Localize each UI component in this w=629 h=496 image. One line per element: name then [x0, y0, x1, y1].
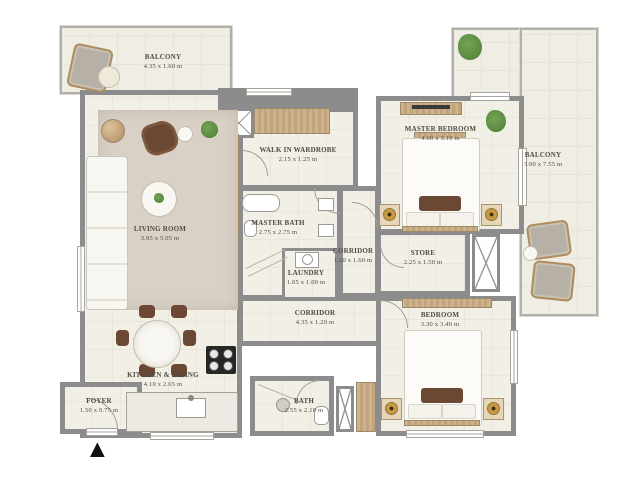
room-dims: 3.95 x 5.05 m [115, 234, 205, 243]
burner-icon [223, 349, 233, 359]
balcony-right-label: BALCONY 3.00 x 7.55 m [507, 150, 579, 170]
pillow [408, 404, 442, 419]
bed-throw-second [421, 388, 463, 403]
bedroom-wardrobe [402, 298, 492, 308]
bathtub [242, 194, 280, 212]
kitchen-sink [176, 398, 206, 418]
room-name: LIVING ROOM [115, 224, 205, 234]
pillow [440, 212, 474, 227]
master-bath-label: MASTER BATH 2.75 x 2.75 m [234, 218, 322, 238]
plant-balcony-icon [458, 34, 482, 60]
room-dims: 2.15 x 1.25 m [243, 155, 353, 164]
room-name: MASTER BEDROOM [388, 124, 493, 134]
room-name: BEDROOM [394, 310, 486, 320]
dining-table [133, 320, 181, 368]
bedroom-label: BEDROOM 3.30 x 3.40 m [394, 310, 486, 330]
sink-master-1 [318, 198, 334, 211]
side-table-wood [101, 119, 125, 143]
room-dims: 1.05 x 1.00 m [272, 278, 340, 287]
burner-icon [209, 349, 219, 359]
pillow [442, 404, 476, 419]
living-room-label: LIVING ROOM 3.95 x 5.05 m [115, 224, 205, 244]
room-dims: 4.35 x 1.20 m [268, 318, 362, 327]
room-dims: 2.55 x 2.10 m [264, 406, 344, 415]
wardrobe-cabinet-top [254, 108, 330, 134]
dining-chair [116, 330, 129, 346]
pillow [406, 212, 440, 227]
store-label: STORE 2.25 x 1.50 m [380, 248, 466, 268]
shaft-right-icon [472, 234, 500, 292]
room-name: BALCONY [507, 150, 579, 160]
room-dims: 4.35 x 1.60 m [118, 62, 208, 71]
balcony-side-table [523, 246, 538, 261]
kitchen-label: KITCHEN & DINING 4.10 x 2.65 m [112, 370, 214, 390]
balcony-top-label: BALCONY 4.35 x 1.60 m [118, 52, 208, 72]
room-name: MASTER BATH [234, 218, 322, 228]
balcony-armchair [530, 260, 576, 302]
lamp-icon [385, 402, 398, 415]
faucet-icon [188, 395, 194, 401]
room-name: LAUNDRY [272, 268, 340, 278]
lamp-icon [487, 402, 500, 415]
burner-icon [223, 361, 233, 371]
room-name: BATH [264, 396, 344, 406]
master-tv [412, 105, 450, 109]
corridor-lower-label: CORRIDOR 4.35 x 1.20 m [268, 308, 362, 328]
master-bedroom-label: MASTER BEDROOM 4.60 x 3.10 m [388, 124, 493, 144]
wardrobe-label: WALK IN WARDROBE 2.15 x 1.25 m [243, 145, 353, 165]
washer-door-icon [302, 254, 313, 265]
laundry-label: LAUNDRY 1.05 x 1.00 m [272, 268, 340, 288]
dining-chair [139, 305, 155, 318]
headboard-second [404, 420, 480, 426]
headboard-master [402, 226, 478, 232]
room-dims: 4.60 x 3.10 m [388, 134, 493, 143]
room-dims: 2.25 x 1.50 m [380, 258, 466, 267]
room-dims: 3.30 x 3.40 m [394, 320, 486, 329]
coffee-table-plant-icon [154, 193, 164, 203]
north-arrow-icon: ▲ [85, 437, 110, 462]
window-bedroom-bottom [406, 430, 484, 438]
bath-side-panel [356, 382, 376, 432]
bed-throw-master [419, 196, 461, 211]
room-dims: 3.00 x 7.55 m [507, 160, 579, 169]
window-living-left [77, 246, 85, 312]
room-name: FOYER [64, 396, 134, 406]
floor-plan: BALCONY 4.35 x 1.60 m LIVING ROOM 3.95 x… [0, 0, 629, 496]
room-name: BALCONY [118, 52, 208, 62]
room-name: CORRIDOR [268, 308, 362, 318]
balcony-table [98, 66, 120, 88]
room-name: KITCHEN & DINING [112, 370, 214, 380]
lamp-icon [383, 208, 396, 221]
window-bedroom-right [510, 330, 518, 384]
lamp-icon [485, 208, 498, 221]
dining-chair [183, 330, 196, 346]
window-kitchen-bottom [150, 432, 214, 440]
side-table-small [177, 126, 193, 142]
room-dims: 2.75 x 2.75 m [234, 228, 322, 237]
room-dims: 1.50 x 0.75 m [64, 406, 134, 415]
bath-label: BATH 2.55 x 2.10 m [264, 396, 344, 416]
room-name: STORE [380, 248, 466, 258]
window-master-top [470, 92, 510, 101]
dining-chair [171, 305, 187, 318]
slider-living-balcony [246, 88, 292, 96]
room-dims: 4.10 x 2.65 m [112, 380, 214, 389]
foyer-label: FOYER 1.50 x 0.75 m [64, 396, 134, 416]
plant-living-icon [201, 121, 218, 138]
room-name: WALK IN WARDROBE [243, 145, 353, 155]
